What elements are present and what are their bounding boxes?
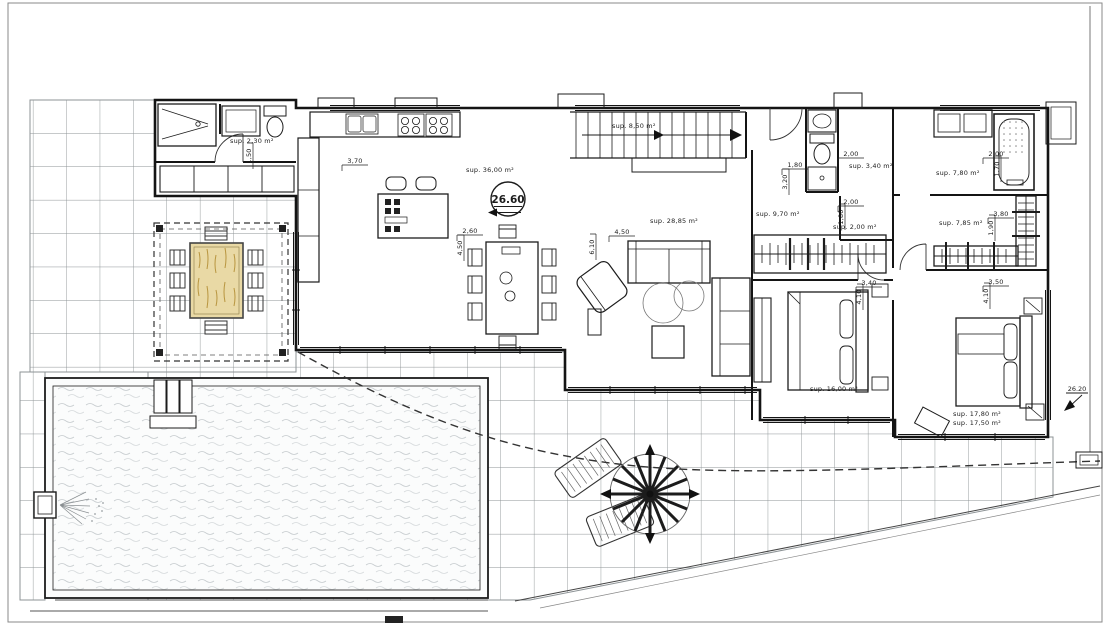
dim-label: 1,70 [993,161,1001,176]
level-main-value: 26.60 [491,194,524,206]
title-block-mark [385,616,403,623]
dim-label: 2,00 [988,150,1003,158]
room-label-bathroom-1: sup. 3,40 m² [849,162,893,170]
dim-label: 6,10 [588,239,596,254]
pool-deck-edge [30,600,488,611]
room-label-bedroom-1: sup. 16,00 m² [810,385,858,393]
dim-label: 3,20 [781,174,789,189]
ac-unit [1046,102,1076,144]
room-label-living: sup. 28,85 m² [650,217,698,225]
dim-label: 2,60 [462,227,477,235]
dim-label: 2,00 [843,150,858,158]
dim-label: 3,70 [347,157,362,165]
dim-label: 4,10 [982,288,990,303]
dim-label: 1,80 [787,161,802,169]
pergola-post [156,225,163,232]
level-terrace-value: 26.20 [1068,385,1087,393]
level-marker-terrace: 26.20 [1064,385,1088,411]
dim-label: 3,40 [861,279,876,287]
pool [30,378,488,611]
room-label-bedroom-2-alt: sup. 17,50 m² [953,419,1001,427]
dim-label: 3,80 [993,210,1008,218]
pergola-post [279,349,286,356]
dim-label: 2,00 [843,198,858,206]
room-label-entry-wc: sup. 2,30 m² [230,137,274,145]
room-label-hallway: sup. 9,70 m² [756,210,800,218]
room-label-bathroom-2: sup. 7,80 m² [936,169,980,177]
room-label-stairs: sup. 8,50 m² [612,122,656,130]
dim-label: 1,80 [837,209,845,224]
pool-steps [150,380,196,428]
dim-label: 4,50 [456,240,464,255]
room-label-dressing: sup. 7,85 m² [939,219,983,227]
dim-label: 4,50 [614,228,629,236]
room-label-bedroom-2: sup. 17,80 m² [953,410,1001,418]
dim-label: 1,90 [987,220,995,235]
floor-plan-svg: 26.60 26.20 sup. 2,30 m² sup. 36,00 m² s… [0,0,1110,626]
room-label-kitchen-living: sup. 36,00 m² [466,166,514,174]
floor-plan-sheet: 26.60 26.20 sup. 2,30 m² sup. 36,00 m² s… [0,0,1110,626]
pergola-post [156,349,163,356]
dim-label: 4,10 [855,289,863,304]
dim-label: 1,50 [245,148,253,163]
dim-label: 3,50 [988,278,1003,286]
pergola-post [279,225,286,232]
